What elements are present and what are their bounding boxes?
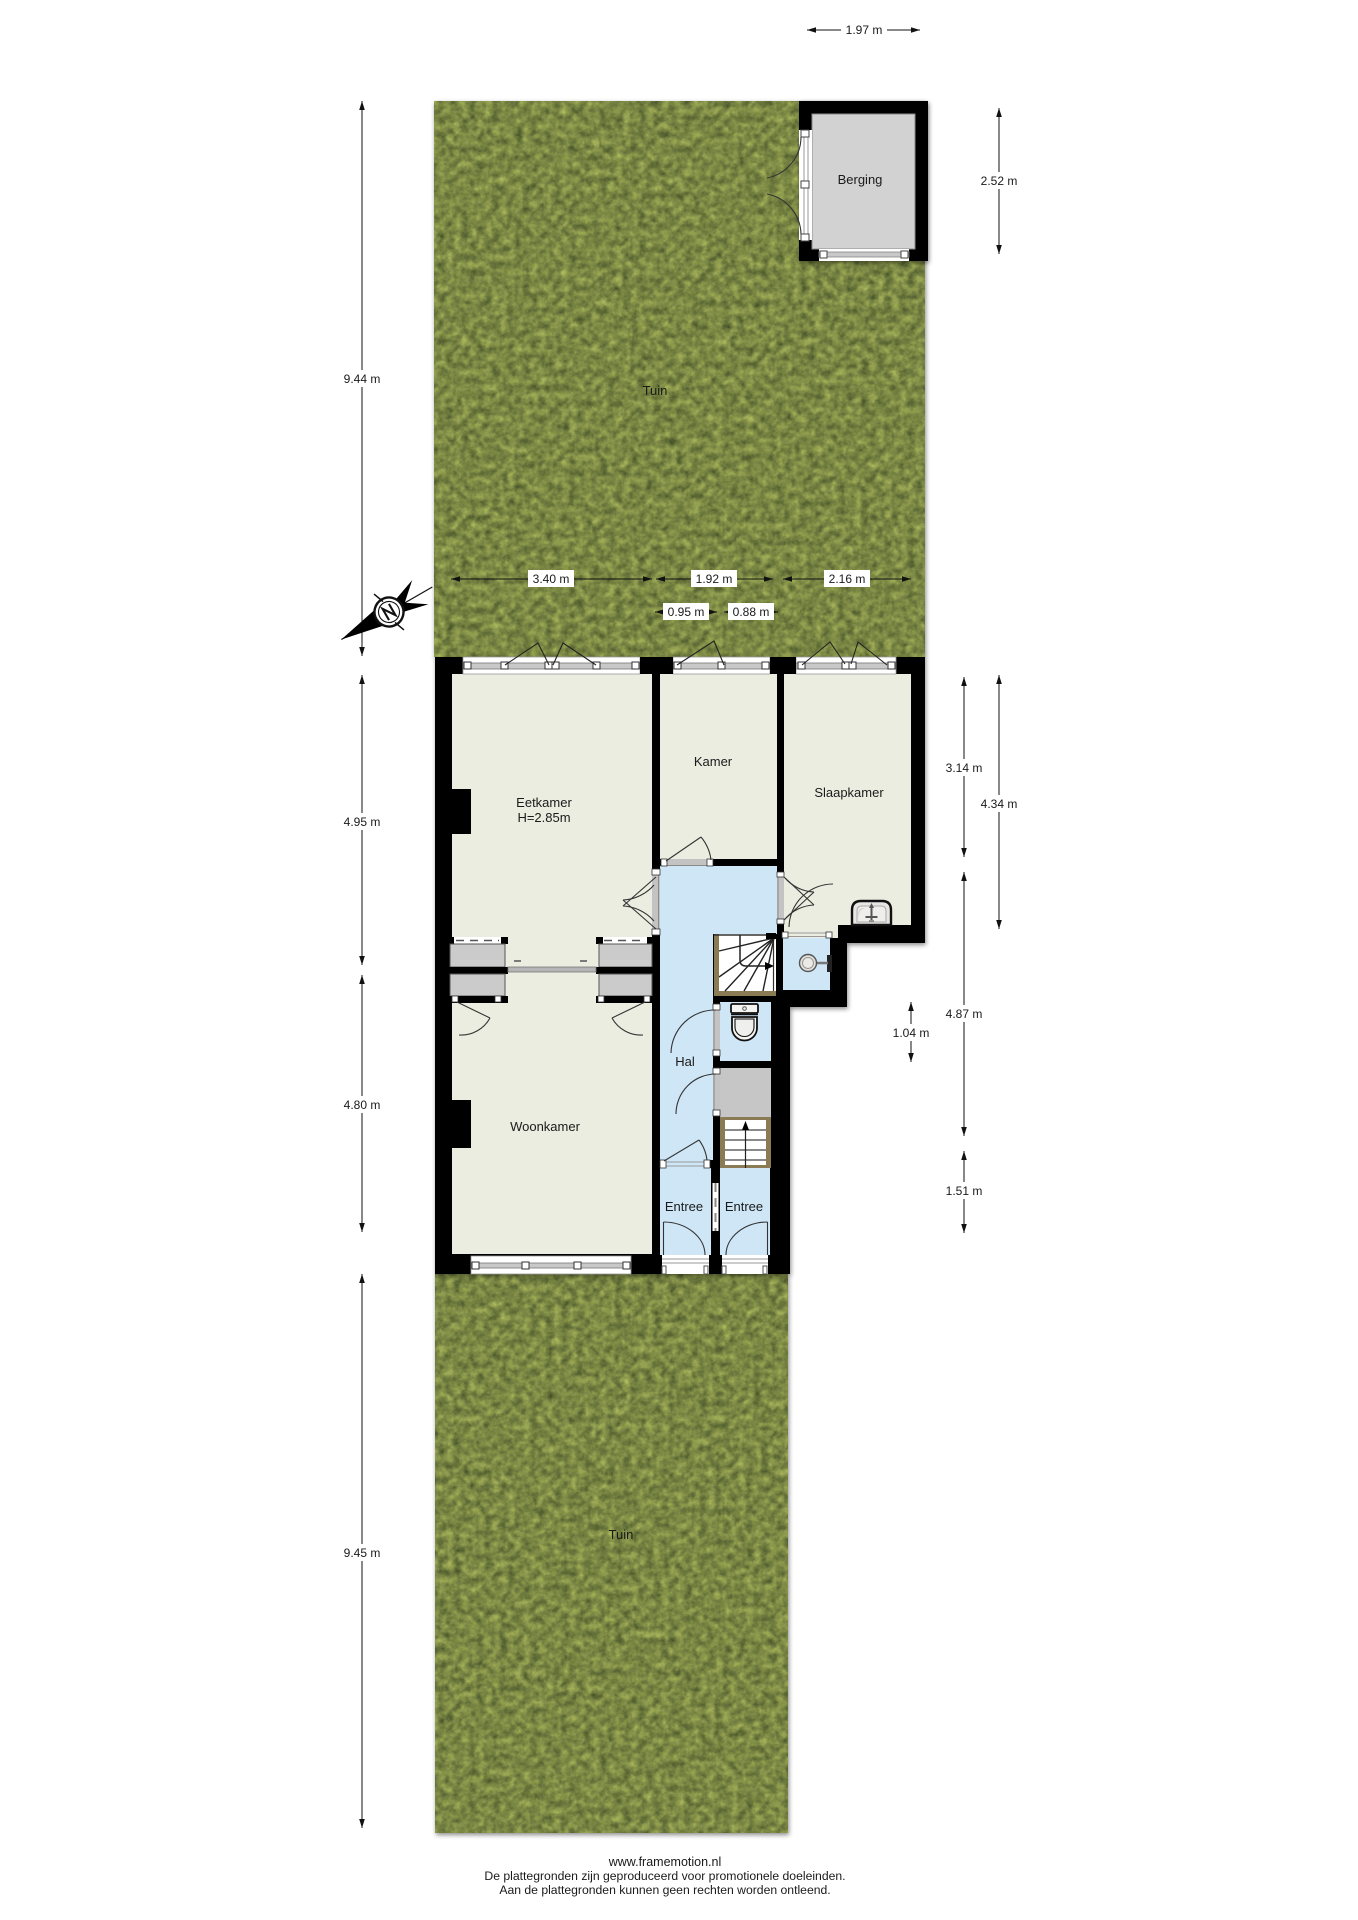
svg-text:9.44 m: 9.44 m — [344, 372, 381, 386]
svg-text:Berging: Berging — [838, 172, 883, 187]
svg-text:Hal: Hal — [675, 1054, 695, 1069]
svg-text:4.95 m: 4.95 m — [344, 815, 381, 829]
svg-text:9.45 m: 9.45 m — [344, 1546, 381, 1560]
svg-text:4.87 m: 4.87 m — [946, 1007, 983, 1021]
svg-text:Entree: Entree — [665, 1199, 703, 1214]
svg-text:3.40 m: 3.40 m — [533, 572, 570, 586]
svg-text:Tuin: Tuin — [643, 383, 668, 398]
svg-text:1.51 m: 1.51 m — [946, 1184, 983, 1198]
svg-text:1.97 m: 1.97 m — [846, 23, 883, 37]
svg-text:H=2.85m: H=2.85m — [517, 810, 570, 825]
svg-text:2.52 m: 2.52 m — [981, 174, 1018, 188]
svg-text:Eetkamer: Eetkamer — [516, 795, 572, 810]
svg-text:2.16 m: 2.16 m — [829, 572, 866, 586]
svg-text:4.34 m: 4.34 m — [981, 797, 1018, 811]
svg-text:Slaapkamer: Slaapkamer — [814, 785, 884, 800]
svg-text:4.80 m: 4.80 m — [344, 1098, 381, 1112]
svg-text:Woonkamer: Woonkamer — [510, 1119, 581, 1134]
svg-text:Aan de plattegronden kunnen ge: Aan de plattegronden kunnen geen rechten… — [499, 1883, 830, 1897]
svg-text:Kamer: Kamer — [694, 754, 733, 769]
svg-text:1.92 m: 1.92 m — [696, 572, 733, 586]
svg-text:Tuin: Tuin — [609, 1527, 634, 1542]
svg-text:www.framemotion.nl: www.framemotion.nl — [608, 1855, 722, 1869]
svg-text:Entree: Entree — [725, 1199, 763, 1214]
svg-text:0.88 m: 0.88 m — [733, 605, 770, 619]
svg-text:1.04 m: 1.04 m — [893, 1026, 930, 1040]
svg-text:0.95 m: 0.95 m — [668, 605, 705, 619]
svg-text:De plattegronden zijn geproduc: De plattegronden zijn geproduceerd voor … — [484, 1869, 845, 1883]
svg-text:3.14 m: 3.14 m — [946, 761, 983, 775]
